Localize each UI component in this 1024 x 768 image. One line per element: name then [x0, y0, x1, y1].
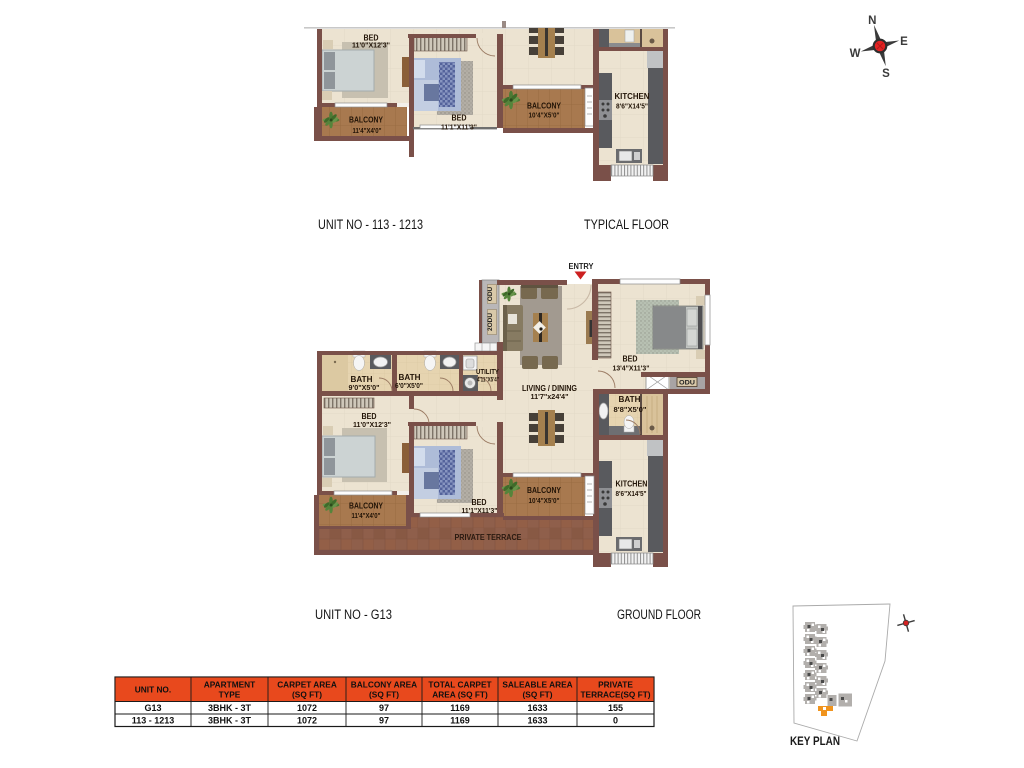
svg-text:11'4"X4'0": 11'4"X4'0" [353, 126, 382, 135]
svg-text:PRIVATE: PRIVATE [598, 680, 633, 690]
svg-text:BALCONY: BALCONY [349, 501, 383, 511]
svg-text:10'4"X5'0": 10'4"X5'0" [529, 111, 560, 120]
svg-text:11'0"X12'3": 11'0"X12'3" [352, 41, 390, 50]
svg-text:PRIVATE TERRACE: PRIVATE TERRACE [455, 532, 522, 542]
svg-text:KITCHEN: KITCHEN [616, 479, 648, 489]
svg-text:9'0"X5'0": 9'0"X5'0" [349, 383, 380, 392]
svg-text:(SQ FT): (SQ FT) [292, 690, 322, 700]
svg-text:1169: 1169 [450, 716, 470, 726]
svg-text:UNIT NO - 113 - 1213: UNIT NO - 113 - 1213 [318, 217, 423, 232]
svg-text:10'4"X5'0": 10'4"X5'0" [529, 496, 560, 505]
svg-text:AREA (SQ FT): AREA (SQ FT) [432, 690, 488, 700]
svg-text:APARTMENT: APARTMENT [204, 680, 255, 690]
svg-text:UNIT NO.: UNIT NO. [135, 685, 171, 695]
svg-text:BED: BED [623, 354, 638, 364]
svg-text:113 - 1213: 113 - 1213 [132, 716, 175, 726]
svg-text:E: E [900, 36, 908, 48]
svg-text:ODU: ODU [679, 380, 695, 387]
svg-text:TYPE: TYPE [219, 690, 241, 700]
svg-text:ODU: ODU [487, 286, 494, 301]
svg-text:BED: BED [452, 113, 467, 123]
svg-text:8'6"X14'5": 8'6"X14'5" [616, 489, 647, 498]
svg-text:6'0"X5'0": 6'0"X5'0" [395, 381, 423, 390]
svg-text:N: N [868, 15, 876, 27]
svg-text:CARPET AREA: CARPET AREA [277, 680, 337, 690]
svg-text:1072: 1072 [297, 703, 317, 713]
svg-text:TOTAL CARPET: TOTAL CARPET [428, 680, 491, 690]
svg-text:1169: 1169 [450, 703, 470, 713]
svg-text:11'0"X12'3": 11'0"X12'3" [353, 420, 391, 429]
svg-text:BALCONY: BALCONY [527, 485, 561, 495]
svg-text:(SQ FT): (SQ FT) [369, 690, 399, 700]
svg-text:155: 155 [608, 703, 623, 713]
svg-text:G13: G13 [144, 703, 161, 713]
svg-text:BALCONY: BALCONY [527, 101, 561, 111]
svg-text:97: 97 [379, 703, 389, 713]
svg-text:8'8"X5'0": 8'8"X5'0" [614, 405, 647, 414]
svg-text:KITCHEN: KITCHEN [615, 91, 650, 101]
svg-text:3BHK - 3T: 3BHK - 3T [208, 703, 252, 713]
svg-text:1633: 1633 [527, 716, 547, 726]
svg-text:8'6"X14'5": 8'6"X14'5" [616, 102, 648, 111]
svg-text:SALEABLE AREA: SALEABLE AREA [502, 680, 572, 690]
svg-text:11'1"X11'3": 11'1"X11'3" [462, 506, 498, 515]
svg-text:BALCONY: BALCONY [349, 115, 383, 125]
svg-text:W: W [850, 48, 861, 60]
svg-text:TERRACE(SQ FT): TERRACE(SQ FT) [580, 690, 650, 700]
svg-text:11'1"X11'3": 11'1"X11'3" [441, 123, 477, 132]
svg-text:S: S [882, 68, 890, 80]
svg-text:4'11"X5'4": 4'11"X5'4" [477, 377, 499, 384]
svg-text:11'7"x24'4": 11'7"x24'4" [531, 392, 569, 401]
svg-text:UNIT NO - G13: UNIT NO - G13 [315, 607, 392, 622]
svg-text:UTILITY: UTILITY [476, 367, 499, 376]
svg-text:2ODU: 2ODU [487, 313, 494, 331]
svg-text:13'4"X11'3": 13'4"X11'3" [613, 364, 650, 373]
svg-text:(SQ FT): (SQ FT) [523, 690, 553, 700]
svg-text:0: 0 [613, 716, 618, 726]
svg-text:3BHK - 3T: 3BHK - 3T [208, 716, 252, 726]
svg-text:BALCONY AREA: BALCONY AREA [351, 680, 417, 690]
svg-text:ENTRY: ENTRY [569, 261, 594, 271]
svg-text:1633: 1633 [527, 703, 547, 713]
svg-text:97: 97 [379, 716, 389, 726]
svg-text:KEY PLAN: KEY PLAN [790, 736, 840, 748]
svg-text:BATH: BATH [619, 394, 641, 404]
svg-text:11'4"X4'0": 11'4"X4'0" [352, 511, 381, 520]
svg-text:1072: 1072 [297, 716, 317, 726]
svg-text:TYPICAL FLOOR: TYPICAL FLOOR [584, 217, 669, 232]
svg-text:GROUND FLOOR: GROUND FLOOR [617, 607, 701, 622]
